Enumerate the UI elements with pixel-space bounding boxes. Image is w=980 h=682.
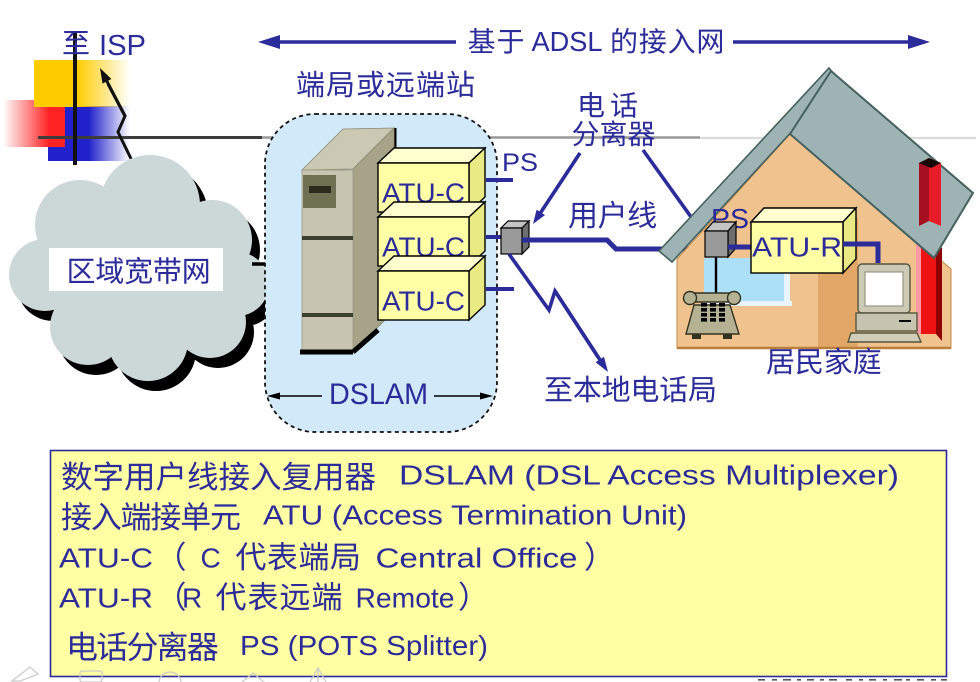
svg-text:ATU (Access Termination Unit): ATU (Access Termination Unit) xyxy=(263,500,687,531)
svg-text:DSLAM (DSL Access Multiplexer): DSLAM (DSL Access Multiplexer) xyxy=(399,460,899,491)
svg-text:R: R xyxy=(182,583,202,614)
svg-text:ATU-R: ATU-R xyxy=(752,232,842,263)
svg-text:ATU-R: ATU-R xyxy=(59,583,153,614)
svg-text:Remote: Remote xyxy=(356,583,455,614)
svg-text:ISP: ISP xyxy=(99,30,146,62)
svg-text:PS: PS xyxy=(502,149,538,177)
svg-text:PS (POTS Splitter): PS (POTS Splitter) xyxy=(240,630,488,661)
svg-text:ADSL: ADSL xyxy=(532,26,603,57)
svg-text:C: C xyxy=(201,543,221,574)
svg-text:DSLAM: DSLAM xyxy=(329,378,428,411)
svg-text:Central Office: Central Office xyxy=(376,543,578,574)
svg-text:ATU-C: ATU-C xyxy=(59,543,153,574)
svg-text:ATU-C: ATU-C xyxy=(382,286,465,317)
